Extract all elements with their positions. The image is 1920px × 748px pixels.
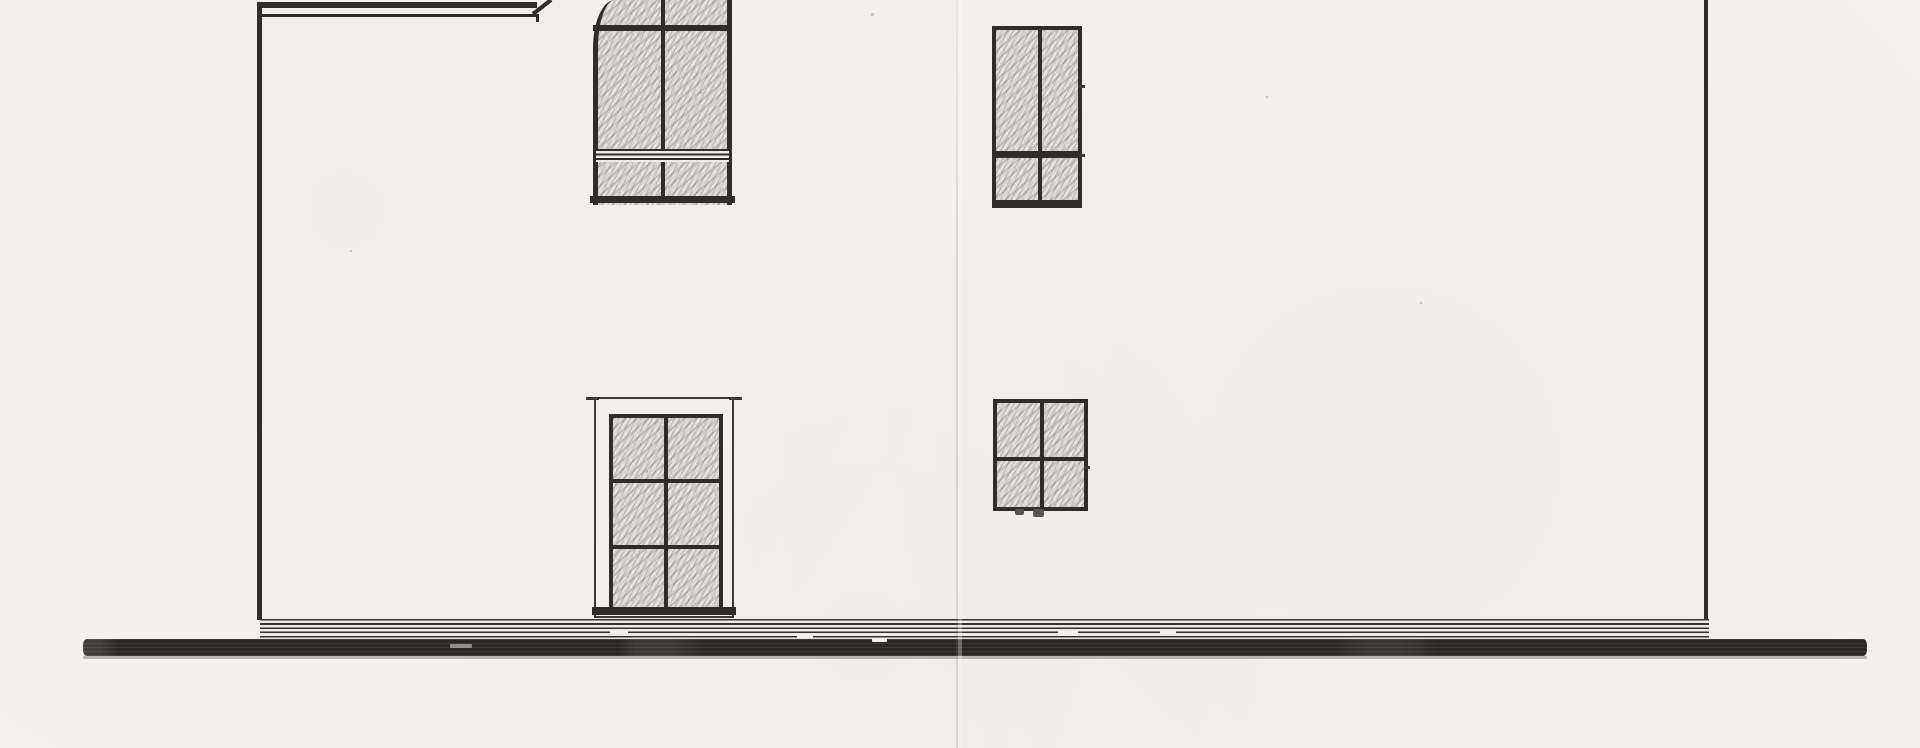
ground-line [83,639,1867,656]
lower-right-window-mullion [1040,403,1044,507]
lower-left-glazed-door [594,397,734,618]
scan-gap [797,634,813,638]
scan-speck [1420,302,1422,304]
upper-right-window-tick [1078,85,1085,88]
upper-left-arched-window [593,0,732,205]
scan-gap [450,644,472,648]
wing-eave-end-tick [536,14,539,22]
plinth-band [260,619,1709,639]
door-mullion [664,418,668,610]
scan-speck [350,250,352,252]
upper-left-window-transom-lines [596,149,729,162]
left-wall-edge [257,2,262,620]
door-sash-glazing [609,414,723,614]
wing-eave-line-bottom [260,14,537,17]
scan-speck [1266,96,1268,98]
lower-right-window [993,399,1088,511]
upper-right-window-sill [993,200,1081,206]
lower-right-window-smudge [1015,509,1024,515]
upper-left-window-mullion [661,0,665,196]
scan-speck [871,13,874,16]
right-wall-edge [1704,0,1708,640]
door-frame-overshoot-left [586,397,599,400]
scan-gap [872,638,887,642]
upper-right-window [992,26,1082,208]
elevation-drawing-sheet [0,0,1920,748]
wing-eave-line-top [257,2,537,8]
upper-left-window-sill [590,196,735,203]
door-muntin-upper [613,479,719,483]
lower-right-window-tick [1084,466,1090,469]
paper-fold-highlight [958,0,962,748]
lower-right-window-smudge [1033,509,1044,517]
scan-speck [646,470,648,473]
door-sill [592,607,736,615]
scan-gap [610,630,628,634]
upper-right-window-tick [1078,154,1085,157]
scan-gap [1160,630,1176,634]
scan-gap [1058,631,1078,635]
ground-line-shadow [83,656,1867,659]
lower-right-window-muntin [997,457,1084,461]
door-frame-overshoot-right [729,397,742,400]
scan-speck [700,92,702,94]
upper-right-window-mullion [1038,30,1042,204]
door-muntin-lower [613,545,719,549]
upper-right-window-transom [996,151,1078,158]
